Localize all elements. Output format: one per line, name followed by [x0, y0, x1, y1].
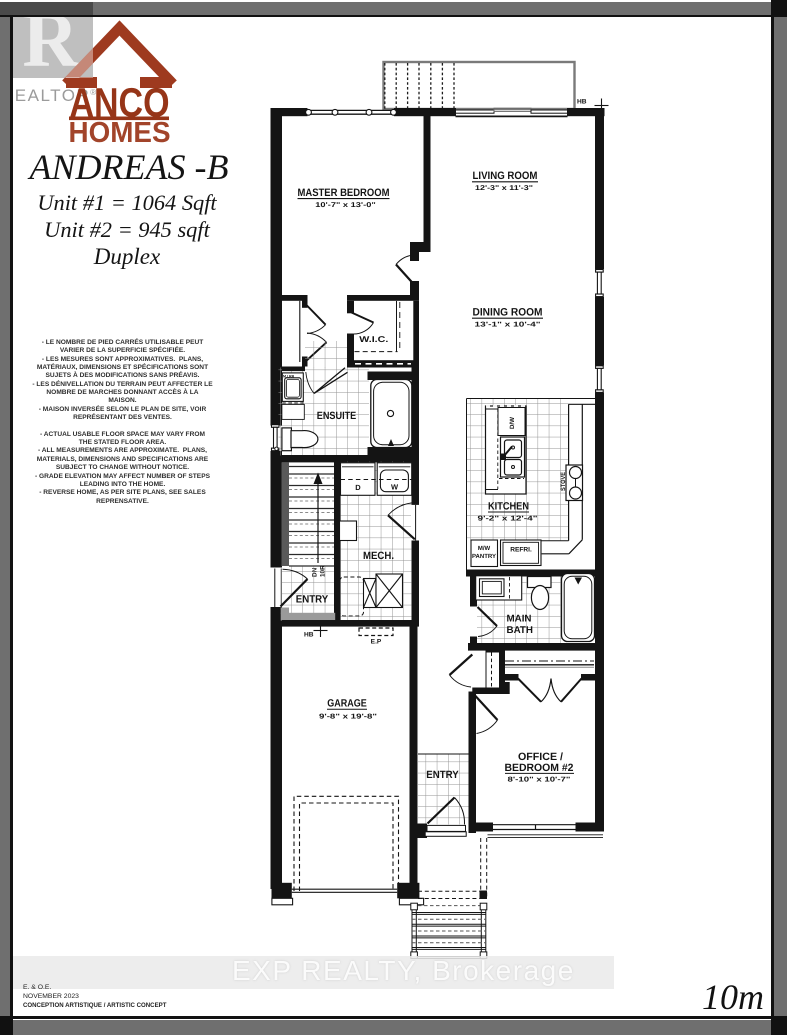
svg-text:BEDROOM #2: BEDROOM #2 — [505, 762, 574, 774]
svg-text:LIVING ROOM: LIVING ROOM — [473, 170, 538, 182]
svg-text:W.I.C.: W.I.C. — [359, 334, 388, 344]
svg-text:M.I.RR: M.I.RR — [283, 375, 295, 379]
svg-text:13'-1" x 10'-4": 13'-1" x 10'-4" — [475, 322, 541, 329]
svg-text:12'-3" x 11'-3": 12'-3" x 11'-3" — [475, 185, 533, 192]
svg-text:MAIN: MAIN — [507, 614, 532, 625]
svg-text:9'-8" x 19'-8": 9'-8" x 19'-8" — [319, 714, 377, 721]
svg-text:ENTRY: ENTRY — [426, 769, 459, 781]
svg-text:MECH.: MECH. — [363, 550, 394, 562]
svg-text:D/W: D/W — [509, 417, 516, 429]
svg-text:STOVE: STOVE — [560, 472, 567, 491]
svg-text:MASTER BEDROOM: MASTER BEDROOM — [298, 187, 390, 199]
svg-text:ENTRY: ENTRY — [296, 594, 329, 606]
svg-text:BATH: BATH — [507, 625, 534, 636]
svg-text:E.P: E.P — [371, 639, 382, 646]
svg-text:REFRI.: REFRI. — [510, 547, 532, 554]
svg-text:M/W: M/W — [478, 545, 491, 552]
svg-text:HB: HB — [577, 99, 587, 106]
svg-text:D: D — [355, 483, 361, 492]
svg-text:HB: HB — [304, 632, 314, 639]
svg-text:8'-10" x 10'-7": 8'-10" x 10'-7" — [508, 777, 571, 784]
svg-text:9'-2" x 12'-4": 9'-2" x 12'-4" — [478, 516, 538, 523]
svg-text:10'-7" x 13'-0": 10'-7" x 13'-0" — [315, 202, 376, 209]
svg-text:GARAGE: GARAGE — [327, 698, 367, 710]
svg-text:ENSUITE: ENSUITE — [317, 410, 357, 422]
svg-text:DINING ROOM: DINING ROOM — [473, 307, 543, 319]
svg-text:PANTRY: PANTRY — [472, 553, 496, 560]
svg-text:KITCHEN: KITCHEN — [488, 501, 529, 513]
svg-text:W: W — [391, 483, 399, 492]
